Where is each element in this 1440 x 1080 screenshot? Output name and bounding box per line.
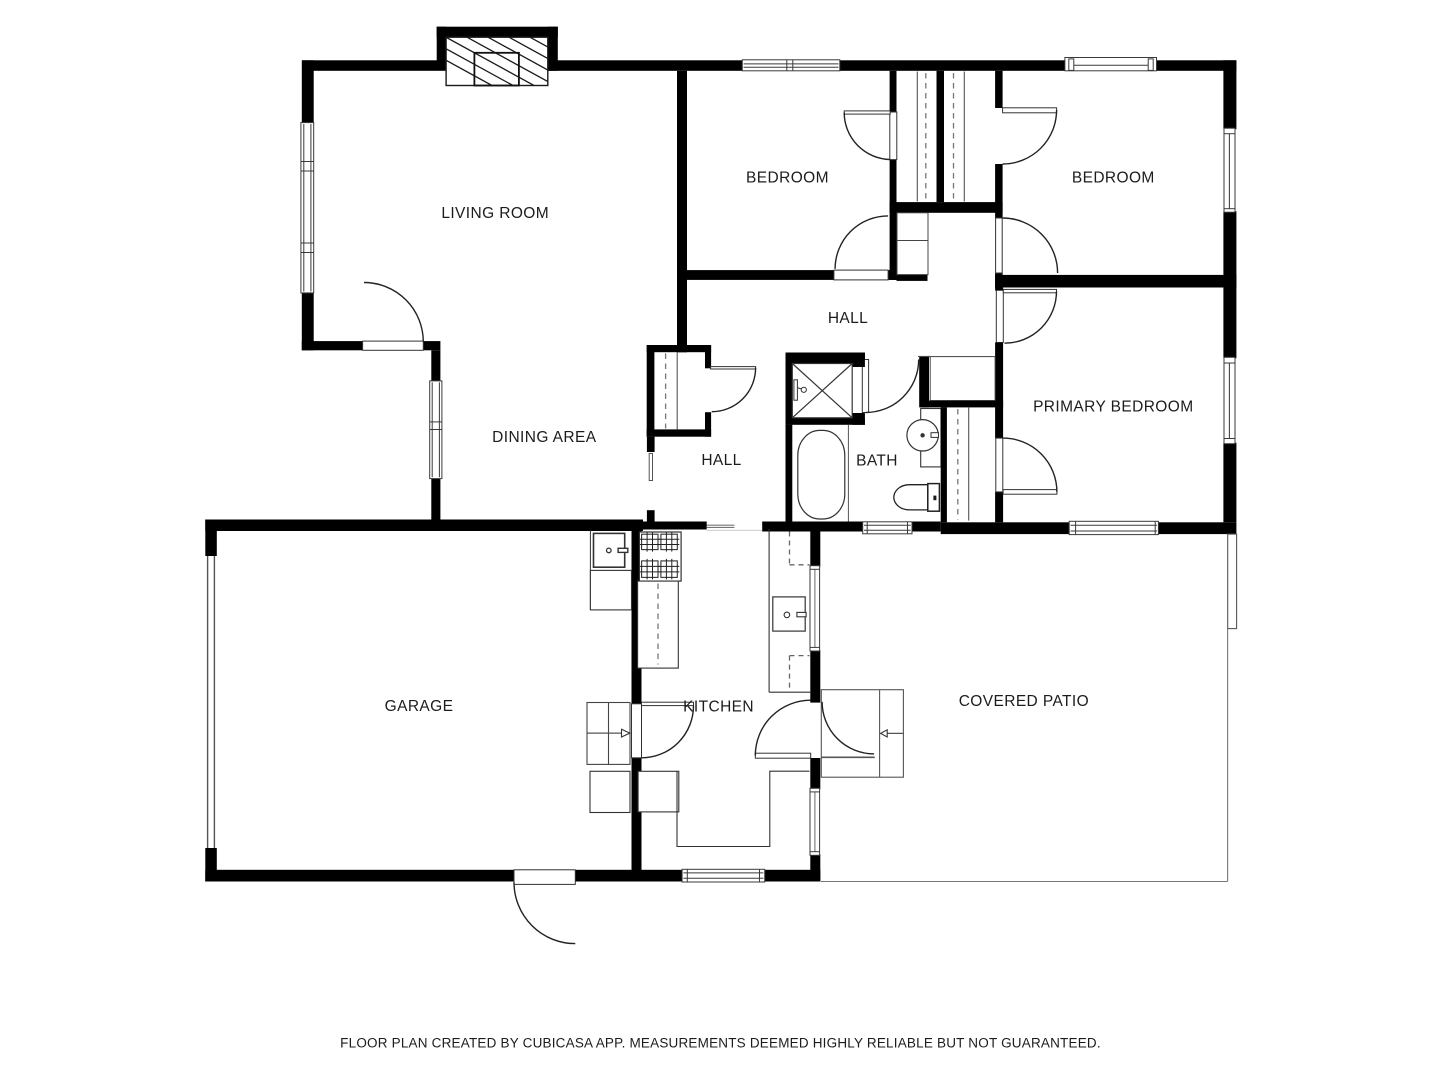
svg-text:KITCHEN: KITCHEN [683,698,754,715]
svg-text:LIVING ROOM: LIVING ROOM [441,205,549,222]
svg-text:COVERED PATIO: COVERED PATIO [959,693,1089,710]
svg-text:GARAGE: GARAGE [385,698,454,715]
svg-text:PRIMARY BEDROOM: PRIMARY BEDROOM [1033,399,1193,416]
svg-text:BATH: BATH [856,453,898,470]
svg-text:DINING AREA: DINING AREA [492,429,597,446]
svg-text:BEDROOM: BEDROOM [746,169,829,186]
svg-text:BEDROOM: BEDROOM [1072,169,1155,186]
svg-text:HALL: HALL [828,310,868,327]
svg-text:HALL: HALL [701,452,741,469]
svg-text:FLOOR PLAN CREATED BY CUBICASA: FLOOR PLAN CREATED BY CUBICASA APP. MEAS… [340,1036,1101,1051]
